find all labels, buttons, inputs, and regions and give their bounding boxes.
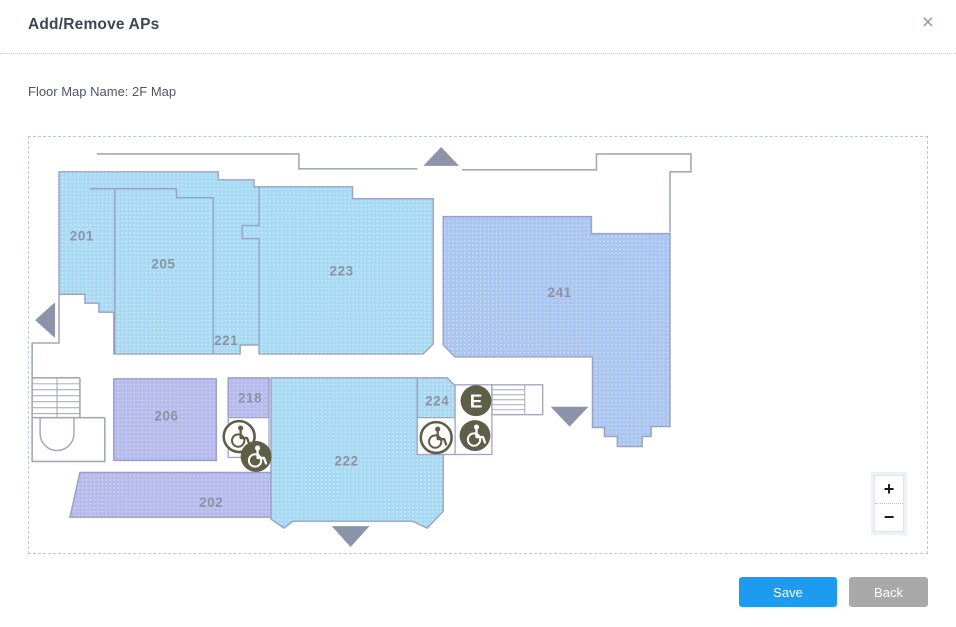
stairs-right — [492, 385, 543, 415]
wheelchair-solid-icon — [241, 441, 272, 472]
floor-map-name-label: Floor Map Name: 2F Map — [28, 84, 176, 99]
close-icon[interactable]: × — [922, 12, 934, 33]
room-label-224: 224 — [425, 394, 449, 409]
zoom-out-button[interactable]: − — [875, 503, 903, 531]
room-label-205: 205 — [151, 256, 175, 271]
room-label-222: 222 — [335, 453, 359, 468]
elevator-icon: E — [461, 385, 492, 416]
floor-map-container[interactable]: E 201 205 221 223 241 206 218 224 222 20… — [28, 136, 928, 554]
room-label-218: 218 — [238, 391, 262, 406]
svg-text:E: E — [470, 392, 483, 413]
dialog-header: Add/Remove APs × — [0, 0, 956, 54]
zoom-control: + − — [874, 475, 904, 532]
room-label-223: 223 — [330, 263, 354, 278]
left-arrow-icon — [35, 302, 55, 338]
down-arrow-icon — [551, 407, 589, 427]
room-202[interactable] — [70, 472, 271, 517]
down-arrow-icon — [332, 526, 370, 547]
up-arrow-icon — [423, 147, 459, 166]
floor-map-canvas[interactable]: E 201 205 221 223 241 206 218 224 222 20… — [29, 137, 927, 553]
wheelchair-outline-icon — [421, 422, 452, 453]
room-label-206: 206 — [154, 409, 178, 424]
room-label-202: 202 — [199, 495, 223, 510]
room-label-201: 201 — [70, 229, 94, 244]
room-label-241: 241 — [548, 285, 572, 300]
stairs-left — [32, 378, 80, 451]
wheelchair-solid-icon — [460, 420, 491, 451]
dialog-title: Add/Remove APs — [28, 16, 159, 34]
save-button[interactable]: Save — [739, 577, 837, 607]
zoom-in-button[interactable]: + — [875, 476, 903, 503]
back-button[interactable]: Back — [849, 577, 928, 607]
room-label-221: 221 — [214, 333, 238, 348]
